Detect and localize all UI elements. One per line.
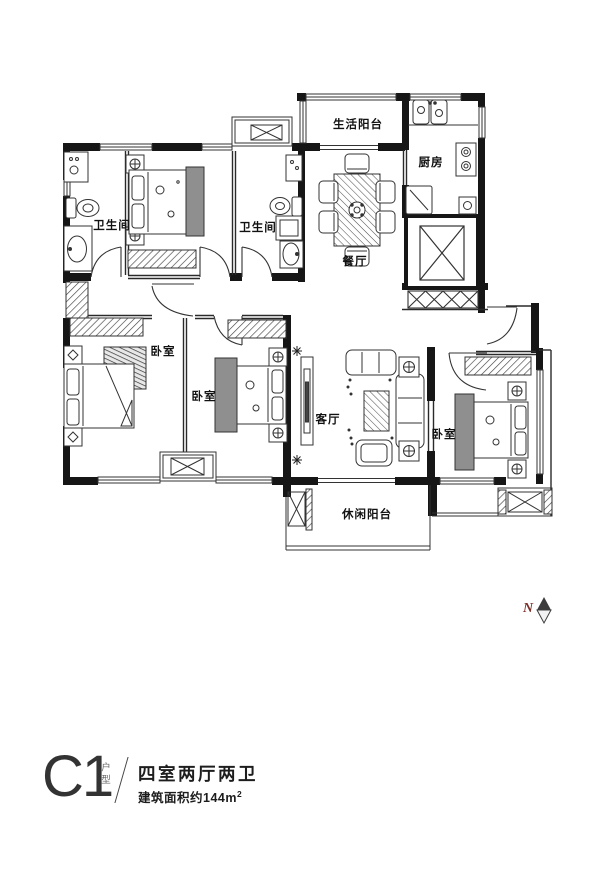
bedroom-middle-furniture	[215, 348, 287, 442]
bedroom-top-furniture	[126, 155, 204, 245]
room-label-bath-right: 卫生间	[239, 219, 277, 235]
room-label-bedroom-middle: 卧室	[192, 388, 217, 404]
room-label-living: 客厅	[316, 411, 341, 427]
elevator-shaft	[406, 216, 478, 288]
bathroom-left-fixtures	[64, 152, 99, 271]
title-divider	[114, 757, 129, 803]
compass-icon	[537, 597, 551, 623]
floorplan-page: 生活阳台 厨房 餐厅 卫生间 卫生间 卧室 卧室 客厅 卧室 休闲阳台 N C1…	[0, 0, 600, 883]
floorplan-drawing	[0, 0, 600, 700]
bedroom-right-furniture	[455, 382, 528, 478]
room-label-bedroom-right: 卧室	[432, 426, 457, 442]
bathroom-right-fixtures	[270, 155, 303, 268]
unit-area-text: 建筑面积约144m	[138, 791, 237, 805]
living-furniture	[292, 346, 424, 466]
room-label-bedroom-left: 卧室	[151, 343, 176, 359]
room-label-life-balcony: 生活阳台	[333, 116, 383, 132]
dining-set	[319, 154, 395, 266]
unit-area: 建筑面积约144m2	[138, 787, 242, 806]
compass-north-label: N	[523, 601, 533, 617]
room-label-bath-left: 卫生间	[93, 217, 131, 233]
room-label-dining: 餐厅	[343, 253, 368, 269]
room-label-leisure-balcony: 休闲阳台	[342, 506, 392, 522]
unit-code-suffix: 户型	[97, 762, 111, 787]
room-label-kitchen: 厨房	[419, 154, 444, 170]
unit-headline: 四室两厅两卫	[138, 761, 258, 786]
stairs	[408, 291, 478, 308]
unit-area-sup: 2	[237, 789, 242, 799]
